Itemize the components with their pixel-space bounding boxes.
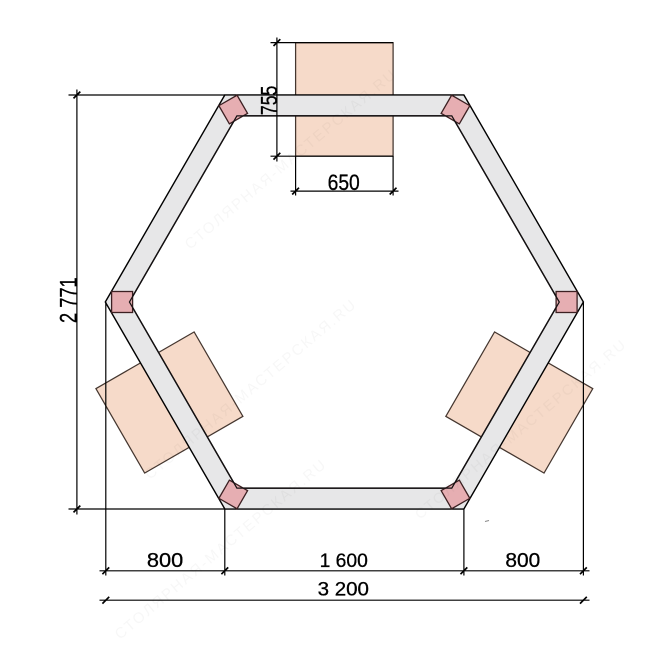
svg-text:3 200: 3 200 <box>318 579 369 600</box>
svg-text:1 600: 1 600 <box>320 551 368 572</box>
svg-text:650: 650 <box>328 171 360 195</box>
svg-text:800: 800 <box>505 549 540 571</box>
svg-text:2 771: 2 771 <box>55 277 82 323</box>
svg-text:755: 755 <box>257 86 283 115</box>
svg-text:800: 800 <box>147 550 183 572</box>
